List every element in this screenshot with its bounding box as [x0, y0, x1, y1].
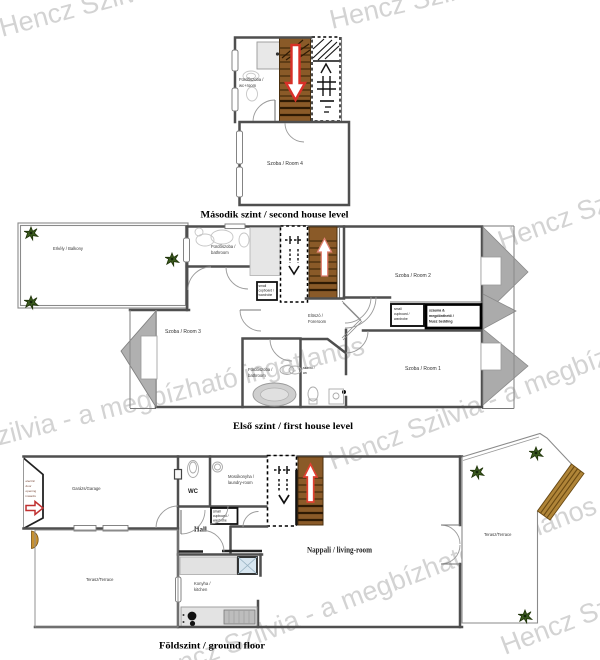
svg-text:kitchen: kitchen — [194, 587, 208, 592]
svg-text:Hall: Hall — [194, 526, 207, 534]
svg-text:laundry-room: laundry-room — [228, 480, 253, 485]
svg-text:bathroom: bathroom — [248, 373, 266, 378]
svg-text:Terasz/Terrace: Terasz/Terrace — [86, 577, 114, 582]
svg-text:szárító /: szárító / — [303, 366, 315, 370]
svg-text:Második szint / second house l: Második szint / second house level — [201, 211, 349, 221]
svg-text:Foreroom: Foreroom — [308, 319, 327, 324]
svg-text:cupboard /: cupboard / — [259, 289, 275, 293]
svg-text:Szoba / Room 4: Szoba / Room 4 — [267, 161, 303, 167]
svg-text:Fürdőszoba /: Fürdőszoba / — [211, 244, 236, 249]
svg-text:Erkély / Balkony: Erkély / Balkony — [53, 246, 84, 251]
svg-text:cupboard /: cupboard / — [394, 312, 410, 316]
svg-text:Szoba / Room 1: Szoba / Room 1 — [405, 366, 441, 372]
svg-text:Terasz/Terrace: Terasz/Terrace — [484, 532, 512, 537]
svg-text:small: small — [213, 510, 221, 514]
svg-text:WC: WC — [188, 489, 199, 495]
svg-text:Első szint / first house level: Első szint / first house level — [233, 422, 353, 432]
svg-text:small: small — [394, 307, 402, 311]
svg-text:Szoba / Room 2: Szoba / Room 2 — [395, 273, 431, 279]
svg-text:Garázs/Garage: Garázs/Garage — [72, 486, 101, 491]
svg-text:Nusz bedding: Nusz bedding — [429, 320, 453, 324]
svg-text:small: small — [259, 284, 267, 288]
svg-text:Mosókonyha /: Mosókonyha / — [228, 474, 255, 479]
svg-text:bathroom: bathroom — [211, 250, 229, 255]
svg-text:electric: electric — [26, 479, 36, 483]
svg-text:Földszint / ground floor: Földszint / ground floor — [159, 642, 266, 652]
svg-text:Konyha /: Konyha / — [194, 581, 211, 586]
svg-text:door: door — [26, 484, 32, 488]
svg-text:wardrobe: wardrobe — [259, 293, 273, 297]
svg-text:megdönthető /: megdönthető / — [429, 314, 454, 318]
svg-text:inwards: inwards — [26, 494, 37, 498]
svg-text:wardrobe: wardrobe — [394, 317, 408, 321]
svg-text:Nappali / living-room: Nappali / living-room — [307, 546, 372, 555]
svg-text:Fürdőszoba /: Fürdőszoba / — [239, 77, 264, 82]
svg-text:Szoba / Room 3: Szoba / Room 3 — [165, 329, 201, 335]
svg-text:Elöszó /: Elöszó / — [308, 313, 324, 318]
svg-text:wc+room: wc+room — [239, 83, 257, 88]
svg-text:wc: wc — [303, 371, 307, 375]
svg-text:szauna &: szauna & — [429, 309, 445, 313]
svg-text:Fürdőszoba /: Fürdőszoba / — [248, 367, 273, 372]
svg-text:opening: opening — [26, 489, 37, 493]
